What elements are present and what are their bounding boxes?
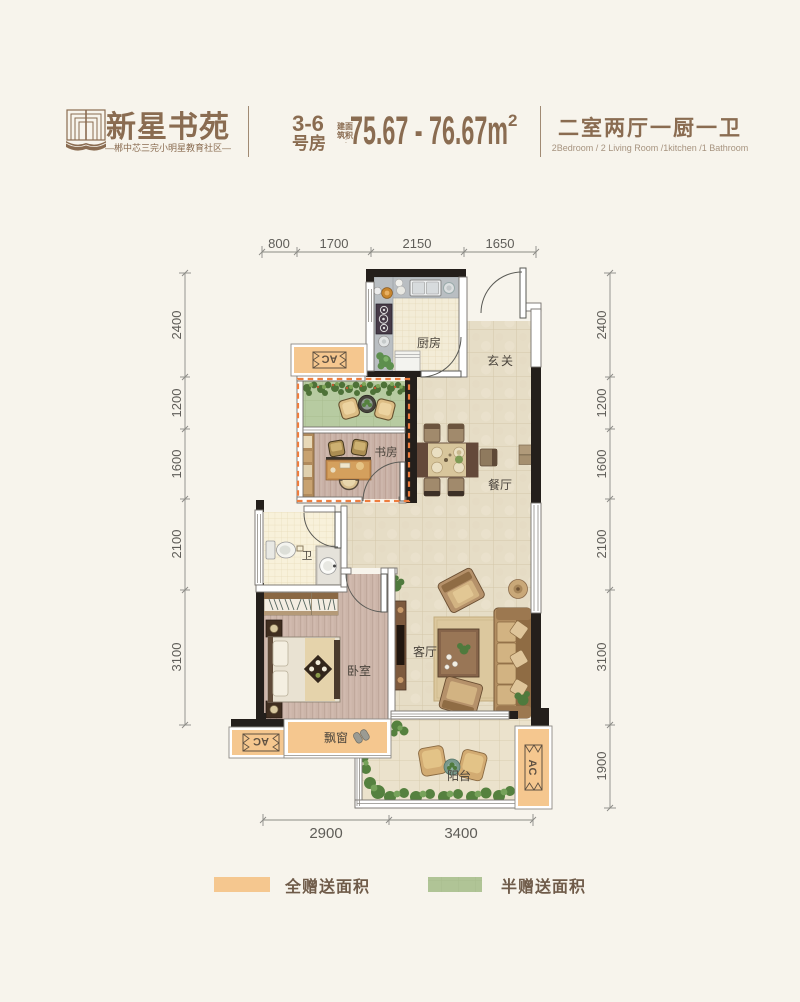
svg-text:75.67 - 76.67m: 75.67 - 76.67m <box>350 109 508 153</box>
svg-text:1600: 1600 <box>594 450 609 479</box>
svg-text:1900: 1900 <box>594 752 609 781</box>
svg-text:2400: 2400 <box>594 311 609 340</box>
svg-text:AC: AC <box>253 735 269 747</box>
svg-text:半赠送面积: 半赠送面积 <box>501 877 586 896</box>
svg-text:3100: 3100 <box>169 643 184 672</box>
svg-text:2400: 2400 <box>169 311 184 340</box>
svg-text:飘窗: 飘窗 <box>324 731 348 745</box>
svg-text:卧室: 卧室 <box>347 663 371 678</box>
svg-text:1700: 1700 <box>320 236 349 251</box>
svg-text:客厅: 客厅 <box>413 644 437 659</box>
svg-text:1200: 1200 <box>594 389 609 418</box>
svg-text:AC: AC <box>322 353 338 365</box>
svg-text::: : <box>345 138 347 145</box>
svg-text:2Bedroom / 2 Living Room /1kit: 2Bedroom / 2 Living Room /1kitchen /1 Ba… <box>552 143 749 153</box>
svg-text:800: 800 <box>268 236 290 251</box>
svg-text:3100: 3100 <box>594 643 609 672</box>
svg-text:号房: 号房 <box>292 133 326 153</box>
svg-text:3400: 3400 <box>444 825 477 842</box>
svg-text:1650: 1650 <box>486 236 515 251</box>
svg-text:AC: AC <box>526 760 538 776</box>
svg-text:2100: 2100 <box>594 530 609 559</box>
svg-text:1200: 1200 <box>169 389 184 418</box>
svg-text:阳台: 阳台 <box>447 768 471 783</box>
svg-text:2100: 2100 <box>169 530 184 559</box>
svg-text:二室两厅一厨一卫: 二室两厅一厨一卫 <box>558 116 742 140</box>
svg-text:2: 2 <box>508 111 517 130</box>
svg-text:书房: 书房 <box>375 446 398 459</box>
svg-text:玄关: 玄关 <box>487 353 515 368</box>
svg-text:1600: 1600 <box>169 450 184 479</box>
svg-text:餐厅: 餐厅 <box>488 477 512 492</box>
svg-text:全赠送面积: 全赠送面积 <box>284 877 370 896</box>
svg-text:—郴中芯三完小明星教育社区—: —郴中芯三完小明星教育社区— <box>105 142 231 153</box>
svg-text:3-6: 3-6 <box>292 111 324 136</box>
svg-text:2150: 2150 <box>403 236 432 251</box>
svg-text:新星书苑: 新星书苑 <box>106 111 230 144</box>
svg-text:厨房: 厨房 <box>417 335 441 350</box>
svg-text:2900: 2900 <box>309 825 342 842</box>
svg-text:卫: 卫 <box>302 550 313 562</box>
